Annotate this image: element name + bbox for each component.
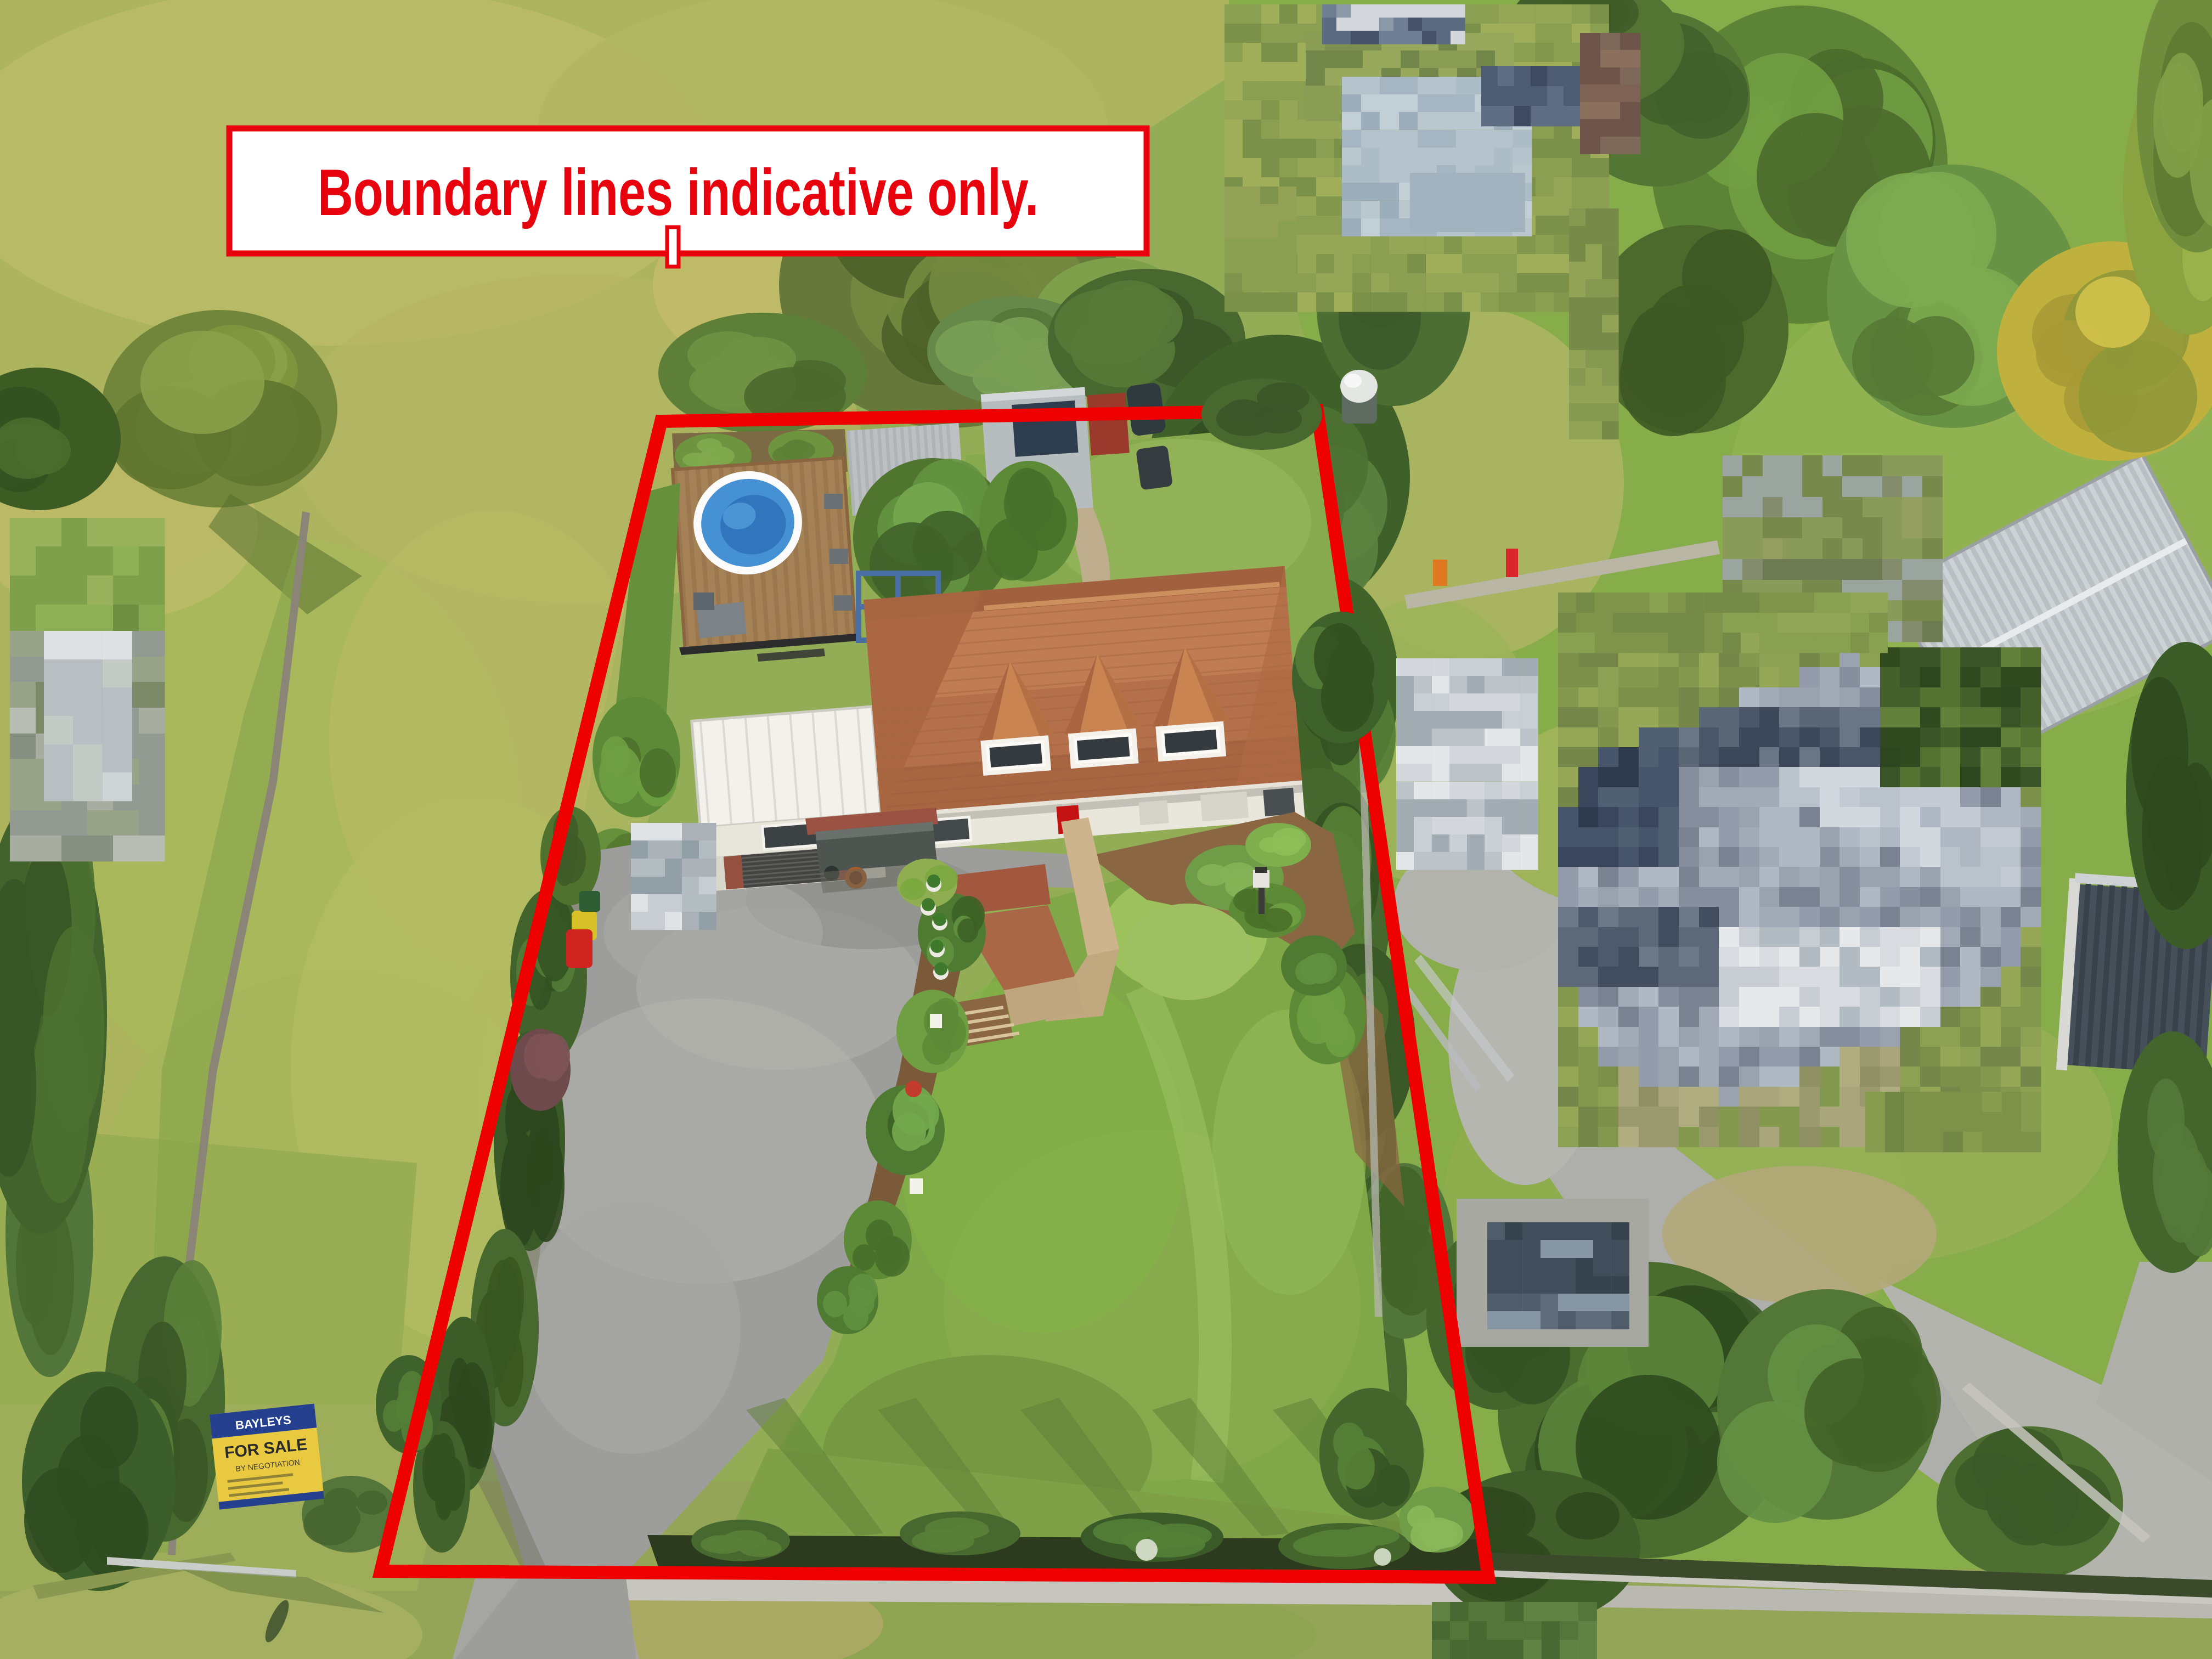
svg-text:Boundary lines indicative only: Boundary lines indicative only.: [318, 156, 1039, 229]
